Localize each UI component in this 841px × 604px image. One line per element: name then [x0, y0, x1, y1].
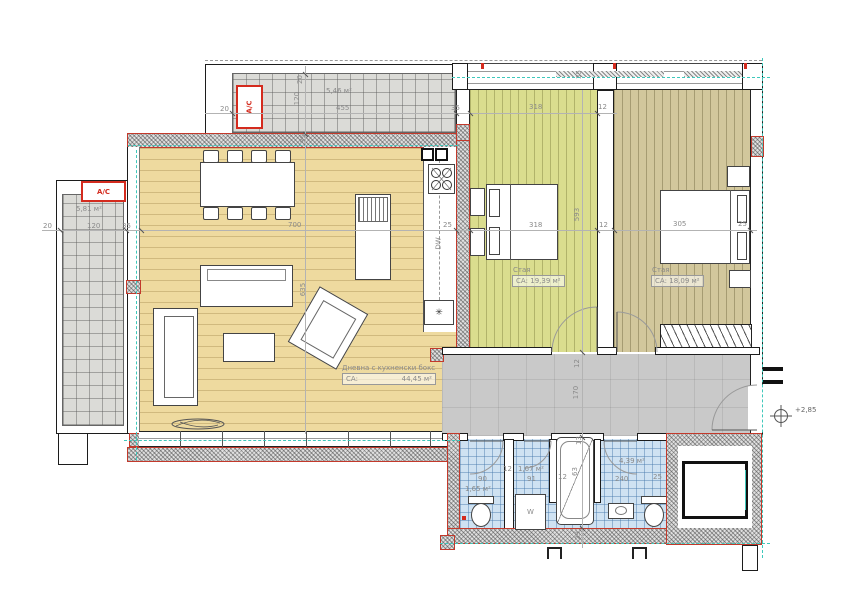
dimension-line — [582, 90, 583, 548]
level-marker-value: +2,85 — [795, 407, 816, 414]
nightstand — [729, 270, 751, 288]
dining-chair — [227, 207, 243, 220]
bedroom1-name: Стая — [513, 266, 530, 274]
dining-table — [200, 162, 295, 207]
wall-stub-mark — [632, 547, 634, 559]
corridor-floor — [442, 354, 750, 436]
wc-wall — [504, 439, 514, 530]
living-window-glass-line — [139, 438, 457, 439]
ac-label: A/C — [97, 188, 110, 196]
dim-label: 20 — [43, 223, 52, 230]
window-mullion — [264, 431, 265, 447]
nightstand — [470, 188, 485, 216]
dim-label: 12 — [574, 359, 581, 368]
dim-label: 35 — [451, 105, 460, 112]
wall-section-bar — [763, 380, 783, 384]
wall-stub-mark — [645, 547, 647, 559]
kitchen-sink — [421, 148, 434, 161]
dim-label: 12 — [503, 466, 512, 473]
elevator-cab — [682, 461, 748, 519]
wc-door — [470, 441, 503, 474]
dim-label: 700 — [288, 222, 301, 229]
entrance-door — [712, 385, 757, 430]
axis-line — [440, 543, 770, 544]
dim-label: 25 — [653, 474, 662, 481]
dining-chair — [275, 207, 291, 220]
top-balcony-area-label: 5,46 м² — [326, 88, 352, 95]
dishwasher-label: DW — [436, 237, 443, 249]
bed-blanket-line — [730, 190, 731, 264]
dim-label: 12 — [599, 222, 608, 229]
dim-label: 90 — [478, 476, 487, 483]
living-bottom-wall — [127, 447, 479, 462]
dim-label: 12 — [558, 474, 567, 481]
area-value: 44,45 м² — [402, 375, 432, 383]
axis-line — [452, 77, 770, 78]
dim-label: 170 — [573, 386, 580, 399]
bath-bottom-wall — [447, 528, 688, 544]
coffee-table — [223, 333, 275, 362]
floor-plan: A/C 5,46 м² A/C 5,81 м² — [0, 0, 841, 604]
axis-line — [762, 58, 763, 558]
wc-area-label: 1,65 м² — [465, 486, 491, 493]
ac-label: A/C — [246, 100, 254, 113]
wall-stub-mark — [560, 547, 562, 559]
washing-machine: W — [515, 494, 546, 530]
plant — [170, 414, 226, 434]
sink-bowl — [615, 506, 627, 515]
laundry-area-label: 1,67 м² — [518, 466, 544, 473]
tub-wall — [594, 439, 601, 503]
bedroom-bottom-wall — [655, 347, 760, 355]
wall-section-bar — [763, 367, 783, 371]
dining-chair — [203, 207, 219, 220]
bedroom1-door — [552, 307, 597, 352]
axis-line — [128, 145, 458, 146]
dim-label: 91 — [527, 476, 536, 483]
axis-line — [136, 150, 137, 460]
dim-label: 318 — [529, 104, 542, 111]
dim-label: 593 — [574, 208, 581, 221]
red-corner-mark — [462, 516, 466, 520]
tv-cabinet-inner — [207, 269, 286, 281]
pillow — [489, 227, 500, 255]
dim-label: 12 — [598, 104, 607, 111]
sofa-cushion — [164, 316, 194, 398]
dim-label: 240 — [615, 476, 628, 483]
bedroom1-area-box: СА: 19,39 м² — [512, 275, 565, 287]
island-drainer — [358, 197, 388, 222]
axis-line — [124, 440, 460, 441]
dimension-line — [42, 230, 757, 231]
ac-unit-top-balcony: A/C — [236, 85, 263, 129]
wall-pier — [456, 124, 470, 141]
dim-label: 25 — [443, 222, 452, 229]
fridge-symbol: ✳ — [435, 308, 443, 318]
area-label: СА: — [346, 375, 358, 383]
dim-label: 120 — [294, 92, 301, 105]
bedroom-bottom-wall — [597, 347, 617, 355]
wall-stub — [742, 545, 758, 571]
dim-label: 455 — [336, 105, 349, 112]
bed-blanket-line — [510, 184, 511, 260]
wall-pier — [126, 280, 141, 294]
bedroom2-door — [617, 312, 657, 352]
dim-label: 635 — [300, 283, 307, 296]
left-balcony-area-label: 5,81 м² — [76, 206, 102, 213]
band-red-tick — [744, 63, 747, 69]
stove-burners — [428, 164, 455, 194]
fridge: ✳ — [424, 300, 454, 325]
washer-label: W — [527, 508, 534, 516]
pillow — [737, 232, 747, 260]
dim-label: 35 — [576, 70, 583, 79]
band-red-tick — [613, 63, 616, 69]
bedroom2-area-box: СА: 18,09 м² — [651, 275, 704, 287]
bedroom-bottom-wall — [442, 347, 552, 355]
pillow — [489, 189, 500, 217]
dining-chair — [251, 207, 267, 220]
ac-unit-left-balcony: A/C — [81, 181, 126, 202]
dimension-line — [305, 66, 306, 434]
wall-stub-mark — [547, 547, 549, 559]
elevator-door-line — [745, 470, 746, 510]
level-marker-icon — [770, 405, 794, 429]
window-mullion — [348, 431, 349, 447]
bedroom1-living-wall — [456, 141, 470, 352]
top-balcony-floor — [232, 73, 456, 133]
kitchen-sink — [435, 148, 448, 161]
dimension-line — [205, 113, 617, 114]
dim-label: 35 — [122, 223, 131, 230]
toilet-bowl — [644, 503, 664, 527]
window-mullion — [390, 431, 391, 447]
dim-label: 63 — [572, 467, 579, 476]
dim-label: 13 — [576, 436, 583, 445]
bathroom-area-label: 4,39 м² — [619, 458, 645, 465]
window-mullion — [306, 431, 307, 447]
dim-label: 20 — [220, 106, 229, 113]
living-area-box: СА: 44,45 м² — [342, 373, 436, 385]
overhang-dashed-line — [205, 60, 762, 61]
dim-label: 35 — [300, 134, 307, 143]
bedroom2-name: Стая — [652, 266, 669, 274]
dim-label: 25 — [738, 221, 747, 228]
dim-label: 29 — [575, 531, 582, 540]
window-mullion — [430, 431, 431, 447]
living-room-name: Дневна с кухненски бокс — [342, 364, 435, 372]
nightstand — [727, 166, 750, 187]
toilet-bowl — [471, 503, 491, 527]
dim-label: 318 — [529, 222, 542, 229]
dim-label: 305 — [673, 221, 686, 228]
dim-label: 20 — [297, 75, 304, 84]
band-red-tick — [481, 63, 484, 69]
balcony-step-structure — [58, 433, 88, 465]
dim-label: 120 — [87, 223, 100, 230]
laundry-door — [524, 441, 551, 468]
pillow — [737, 195, 747, 223]
